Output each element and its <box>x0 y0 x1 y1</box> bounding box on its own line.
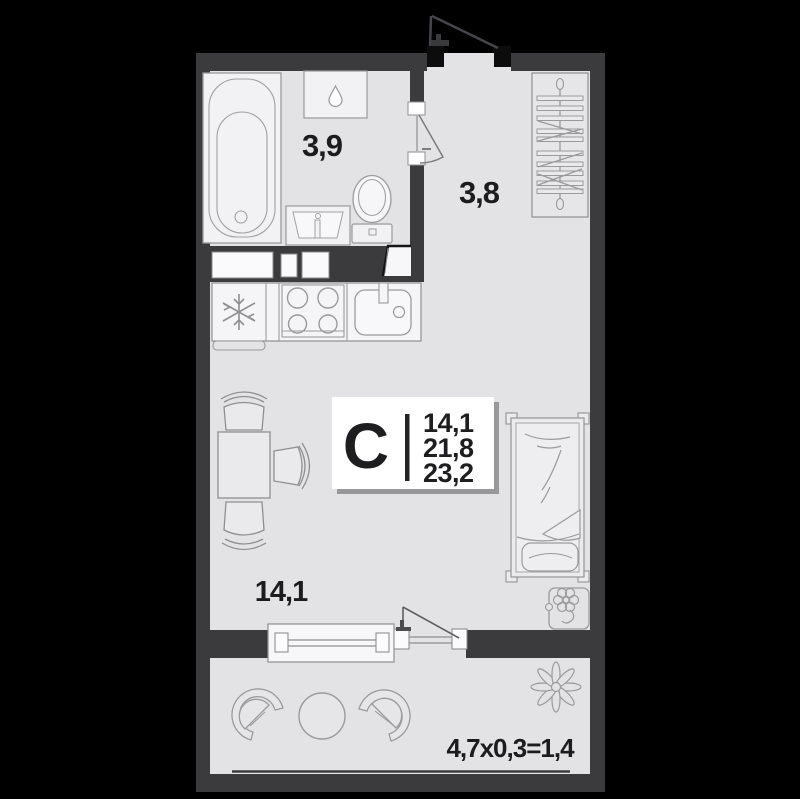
water-heater <box>304 71 367 118</box>
bed <box>506 413 589 582</box>
window <box>268 624 394 662</box>
vent-shaft-medium <box>302 252 329 278</box>
toilet <box>352 176 392 244</box>
floorplan-drawing: 3,9 3,8 14,1 4,7x0,3=1,4 С 14,1 21,8 23,… <box>0 0 800 799</box>
balcony-plant <box>531 662 581 712</box>
living-area-label: 14,1 <box>255 576 308 608</box>
duct-corner <box>383 246 411 276</box>
area-card: С 14,1 21,8 23,2 <box>332 397 499 494</box>
wall-bathroom-right-upper <box>410 71 424 102</box>
wall-right <box>590 53 605 792</box>
toilet-tank <box>352 224 392 243</box>
apartment-type-letter: С <box>343 410 389 482</box>
bathroom-sink <box>286 206 350 245</box>
bathtub <box>203 73 281 243</box>
fridge-door <box>213 341 265 350</box>
vent-shaft-small <box>281 254 297 277</box>
vent-shafts <box>212 252 329 278</box>
wall-window-left <box>196 630 270 658</box>
balcony-dimension-label: 4,7x0,3=1,4 <box>446 733 575 763</box>
wall-balcony-bottom <box>196 774 605 792</box>
bathroom-door-jamb-top <box>408 102 425 115</box>
bathroom-area-label: 3,9 <box>302 128 343 163</box>
wardrobe <box>532 73 588 217</box>
wall-window-right <box>466 630 605 658</box>
coffee-table <box>299 693 345 739</box>
dining-table <box>218 432 270 498</box>
entrance-door-leaf <box>430 16 431 46</box>
bedside-plant <box>546 588 590 629</box>
wall-top-left <box>196 53 427 71</box>
flower-icon <box>531 662 581 712</box>
kitchen-faucet <box>379 283 388 303</box>
entrance-door-jamb-right <box>494 46 511 67</box>
area-value-total: 23,2 <box>423 458 474 488</box>
balcony-door-jamb-right <box>452 629 467 649</box>
card-divider <box>405 414 410 481</box>
vent-shaft-large <box>212 252 273 278</box>
hallway-area-label: 3,8 <box>459 175 500 210</box>
floorplan-stage: 3,9 3,8 14,1 4,7x0,3=1,4 С 14,1 21,8 23,… <box>0 0 800 799</box>
balcony-door-jamb-left <box>394 629 409 649</box>
kitchen-sink <box>355 283 411 335</box>
bathtub-drain <box>235 211 247 223</box>
entrance-door-jamb-left <box>427 46 444 67</box>
